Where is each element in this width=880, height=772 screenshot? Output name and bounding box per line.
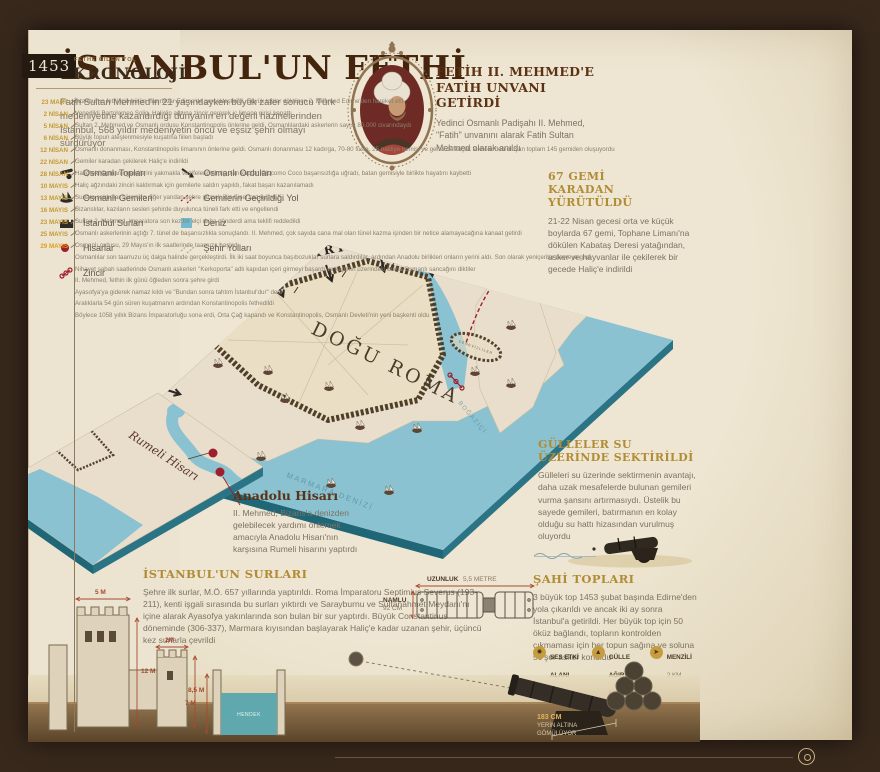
chronology-title: KRONOLOJİ [73, 64, 187, 83]
section-heading: GÜLLELER SU [538, 438, 700, 451]
barrel-label: NAMLU [383, 597, 407, 604]
svg-text:7 M: 7 M [185, 700, 196, 707]
timeline-entry: 5 NİSANSultan 2. Mehmed ve Osmanlı ordus… [32, 122, 847, 130]
cannonball [349, 652, 363, 666]
timeline-entry: 28 NİSANHaliç'teki Osmanlı gemilerini ya… [32, 170, 847, 178]
cannonball-pyramid [607, 662, 661, 710]
firing-cannon-scene: 183 CM YERİN ALTINA GÖMÜLÜYOR [318, 615, 700, 740]
buried-line1: YERİN ALTINA [537, 722, 577, 729]
timeline-entry: 23 MARTİstanbul'un fethi için bütün hazı… [32, 98, 847, 106]
timeline-entry: 10 MAYISHaliç ağzındaki zinciri kaldırma… [32, 182, 847, 190]
svg-text:2M: 2M [165, 637, 174, 644]
timeline-entry: Ayasofya'ya giderek namaz kıldı ve "Bund… [32, 289, 847, 297]
timeline-entry: 2 NİSANVenedikli Bartolomeo Solig, Haliç… [32, 110, 847, 118]
anadolu-heading: Anadolu Hisarı [233, 488, 383, 503]
divider [36, 88, 172, 89]
section-anadolu-hisari: Anadolu Hisarı II. Mehmed, Bizans'a deni… [233, 488, 383, 555]
timeline-entry: 29 MAYISOsmanlı ordusu, 29 Mayıs'ın ilk … [32, 242, 847, 250]
timeline-entry: 23 MAYISSultan 2. Mehmed, imparatora son… [32, 218, 847, 226]
divider [335, 757, 793, 758]
timeline-entry: Aralıklarla 54 gün süren kuşatmanın ardı… [32, 300, 847, 308]
timeline-entry: Nihayet sabah saatlerinde Osmanlı askerl… [32, 266, 847, 274]
agency-logo-icon [798, 748, 815, 765]
timeline-entry: 12 NİSANOsmanlı donanması, Konstantinopo… [32, 146, 847, 154]
moat-label: HENDEK [237, 712, 261, 718]
buried-value: 183 CM [537, 714, 562, 721]
chronology-kicker: FETHE GİDEN YOL [74, 57, 137, 63]
section-heading: ŞAHİ TOPLARI [533, 573, 700, 587]
buried-line2: GÖMÜLÜYOR [537, 730, 577, 737]
shore-cannon-illustration [526, 518, 698, 570]
rumeli-fortress-dot [209, 449, 218, 458]
timeline-entry: 22 NİSANGemiler karadan çekilerek Haliç'… [32, 158, 847, 166]
timeline-entry: II. Mehmed, fethin ilk günü öğleden sonr… [32, 277, 847, 285]
section-heading: ÜZERİNDE SEKTİRİLDİ [538, 451, 700, 464]
timeline-entry: 6 NİSANBüyük topun ateşlenmesiyle kuşatm… [32, 134, 847, 142]
timeline-list: 23 MARTİstanbul'un fethi için bütün hazı… [32, 98, 847, 319]
year-badge: 1453 [22, 54, 76, 78]
timeline-entry: 25 MAYISOsmanlı askerlerinin açtığı 7. t… [32, 230, 847, 238]
timeline-entry: 13 MAYISSurlara saldırılar sürerken diğe… [32, 194, 847, 202]
barrel-value: 92 CM [383, 605, 402, 612]
trajectory-line [360, 661, 516, 689]
anadolu-body: II. Mehmed, Bizans'a denizden gelebilece… [233, 507, 363, 555]
timeline-entry: Böylece 1058 yıllık Bizans İmparatorluğu… [32, 312, 847, 320]
length-value: 5,5 METRE [463, 576, 497, 583]
wall-cross-section-diagram: HENDEK 5 M 12 M 2M 8,5 M 7 M [33, 575, 333, 737]
svg-text:5 M: 5 M [95, 589, 106, 596]
svg-text:8,5 M: 8,5 M [188, 687, 204, 694]
timeline-entry: 16 MAYISBizanslılar, kazıların sesleri ş… [32, 206, 847, 214]
anadolu-fortress-dot [216, 468, 225, 477]
timeline-entry: Osmanlılar son taarruzu üç dalga halinde… [32, 254, 847, 262]
length-label: UZUNLUK [427, 576, 459, 583]
fatih-heading-line1: FETİH II. MEHMED'E [436, 64, 606, 80]
svg-text:12 M: 12 M [141, 668, 155, 675]
infographic-poster: İSTANBUL'UN FETHİ Fatih Sultan Mehmed'in… [28, 30, 852, 740]
